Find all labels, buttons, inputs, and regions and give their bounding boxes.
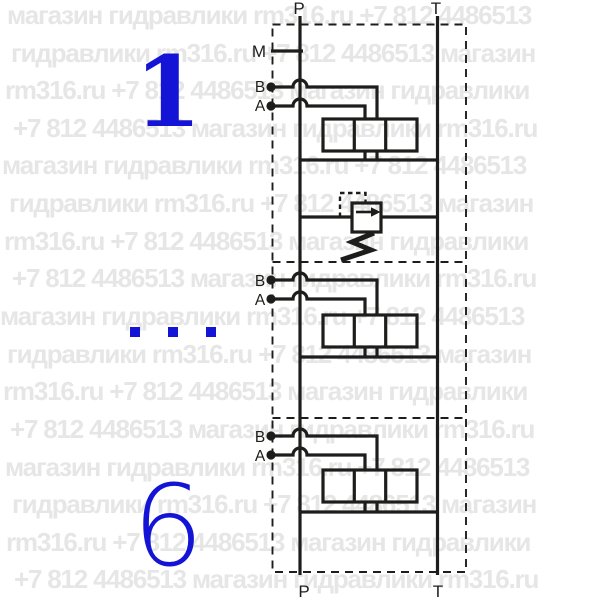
port-a-line [271, 292, 365, 315]
ellipsis-dot [168, 327, 178, 337]
port-b-line [271, 80, 377, 119]
spool-valve-block [323, 119, 417, 151]
m-port-label: M [252, 42, 266, 61]
sections-ellipsis-dots-icon [130, 327, 216, 337]
b-port-label-s1: B [255, 79, 265, 96]
relief-flow-arrow-head [371, 207, 381, 217]
valve-section-1 [268, 80, 438, 160]
port-a-dot [268, 103, 274, 109]
pressure-relief-valve [300, 193, 438, 260]
port-a-line [271, 99, 365, 119]
spool-cell-divider [354, 119, 385, 151]
spool-valve-block [323, 315, 417, 347]
relief-spring-zigzag [341, 233, 374, 260]
hydraulic-schematic-page: магазин гидравлики rm316.ru +7 812 44865… [0, 0, 600, 600]
port-a-dot [268, 452, 274, 458]
valve-schematic-drawing: P T P T M B A B A B A [0, 0, 600, 600]
spool-cell-divider [354, 315, 385, 347]
t-port-label-top: T [431, 0, 441, 18]
relief-valve-box [352, 203, 381, 232]
t-port-label-bottom: T [433, 582, 443, 600]
ellipsis-dot [206, 327, 216, 337]
b-port-label-s2: B [255, 273, 265, 290]
a-port-label-s1: A [255, 98, 266, 115]
section-number-last: 6 [118, 477, 218, 577]
p-port-label-bottom: P [298, 582, 309, 600]
spool-valve-block [323, 470, 417, 502]
port-b-line [271, 429, 377, 470]
b-port-label-s3: B [255, 429, 265, 446]
section-number-first: 1 [118, 49, 218, 134]
port-b-dot [268, 433, 274, 439]
port-b-dot [268, 84, 274, 90]
port-a-line [271, 448, 365, 470]
valve-section-last [268, 429, 438, 512]
a-port-label-s3: A [255, 448, 266, 465]
p-port-label-top: P [293, 0, 304, 18]
port-b-line [271, 273, 377, 315]
ellipsis-dot [130, 327, 140, 337]
spool-cell-divider [354, 470, 385, 502]
valve-section-middle [268, 273, 438, 357]
a-port-label-s2: A [255, 292, 266, 309]
port-b-dot [268, 277, 274, 283]
port-a-dot [268, 296, 274, 302]
